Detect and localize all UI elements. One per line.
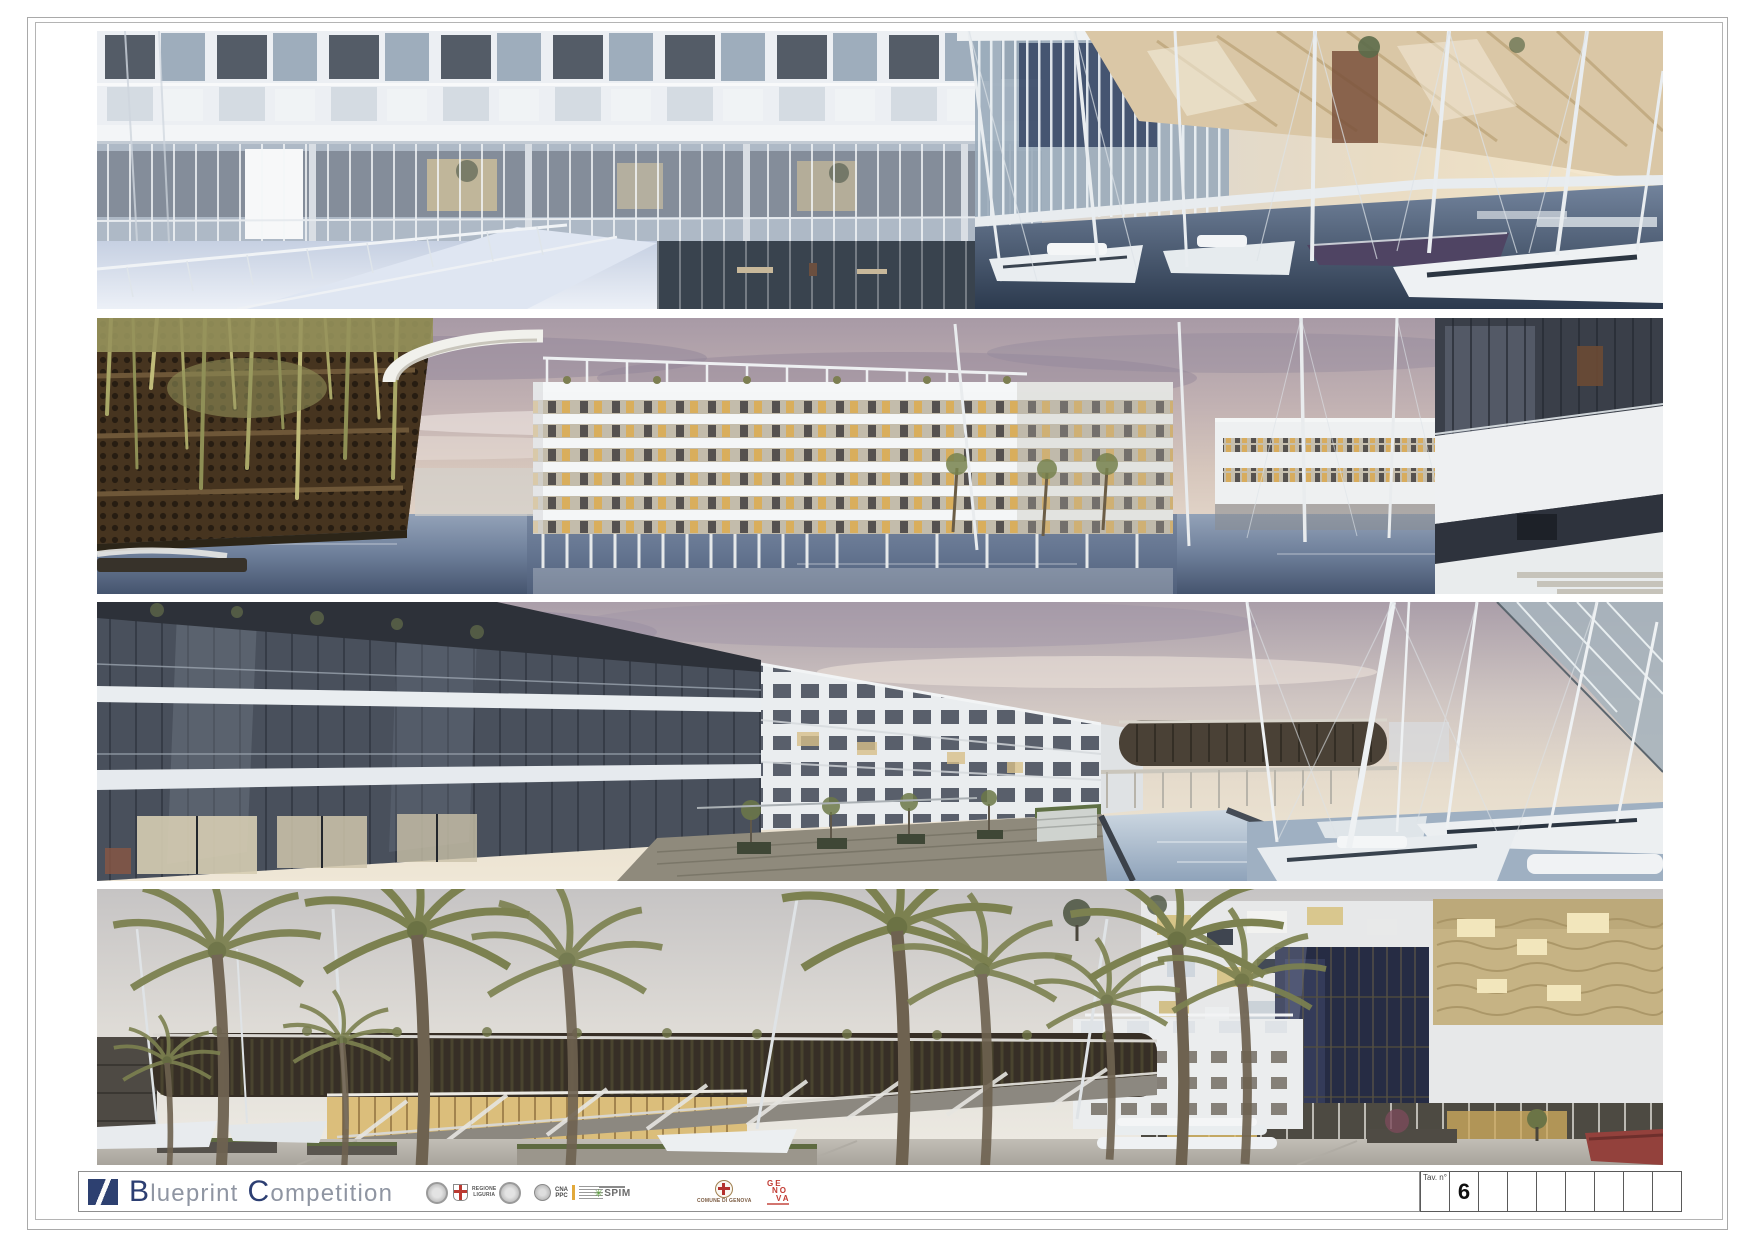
- tav-empty-cell: [1507, 1172, 1536, 1211]
- brand-word-blueprint: lueprint: [150, 1176, 238, 1212]
- cna-emblem-icon: [534, 1184, 551, 1201]
- genova-tagline-bar: [767, 1203, 789, 1205]
- comune-di-genova-logo: COMUNE DI GENOVA: [697, 1172, 752, 1213]
- cna-ppc-logo: CNA PPC: [534, 1172, 603, 1213]
- institutional-seal-logo: [499, 1172, 521, 1213]
- render-strip-3: [97, 602, 1663, 881]
- spim-logo: ✳ SPIM: [594, 1172, 631, 1213]
- blueprint-logo-icon: [88, 1179, 118, 1205]
- tav-empty-cell: [1536, 1172, 1565, 1211]
- tav-empty-cell: [1565, 1172, 1594, 1211]
- spim-leaf-icon: ✳: [594, 1189, 603, 1200]
- tav-label: Tav. n°: [1423, 1173, 1447, 1182]
- sheet-number-table: Tav. n° 6: [1420, 1171, 1682, 1212]
- blueprint-competition-logo: BlueprintCompetition: [129, 1174, 393, 1210]
- brand-initial-c: C: [248, 1174, 271, 1210]
- footer-brand-box: BlueprintCompetition REGIONE LIGURIA CNA: [78, 1171, 1420, 1212]
- genova-cross-seal-icon: [715, 1180, 733, 1198]
- comune-di-genova-label: COMUNE DI GENOVA: [697, 1199, 752, 1204]
- brand-word-competition: ompetition: [270, 1176, 393, 1212]
- round-seal-icon: [426, 1182, 448, 1204]
- genova-brand-logo: GE NO VA: [767, 1172, 791, 1213]
- regione-liguria-logo: REGIONE LIGURIA: [453, 1172, 496, 1213]
- tav-label-cell: Tav. n°: [1421, 1172, 1449, 1211]
- competition-board-page: BlueprintCompetition REGIONE LIGURIA CNA: [0, 0, 1756, 1242]
- ppc-label: PPC: [555, 1193, 567, 1199]
- round-seal-icon: [499, 1182, 521, 1204]
- tav-empty-cell: [1478, 1172, 1507, 1211]
- brand-initial-b: B: [129, 1174, 150, 1210]
- cna-yellow-bar: [572, 1185, 575, 1200]
- render-strip-2: [97, 318, 1663, 594]
- liguria-cross-shield-icon: [453, 1184, 468, 1201]
- tav-number-cell: 6: [1449, 1172, 1478, 1211]
- render-strip-4: [97, 889, 1663, 1165]
- university-seal-logo: [426, 1172, 448, 1213]
- tav-empty-cell: [1652, 1172, 1681, 1211]
- genova-line-va: VA: [767, 1195, 791, 1203]
- spim-label: SPIM: [604, 1189, 630, 1200]
- tav-empty-cell: [1594, 1172, 1623, 1211]
- tav-empty-cell: [1623, 1172, 1652, 1211]
- render-strip-1: [97, 31, 1663, 309]
- liguria-label: LIGURIA: [473, 1193, 495, 1198]
